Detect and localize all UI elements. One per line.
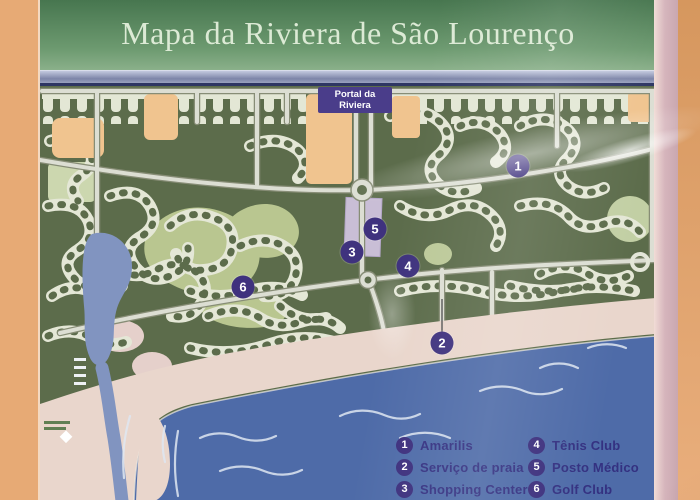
legend-label: Golf Club bbox=[552, 482, 612, 497]
map-marker-2: 2 bbox=[431, 332, 454, 355]
legend-label: Tênis Club bbox=[552, 438, 620, 453]
legend-marker-2: 2 bbox=[396, 459, 413, 476]
legend-label: Shopping Center bbox=[420, 482, 528, 497]
sign-rail-bar bbox=[40, 70, 656, 86]
marker-number: 6 bbox=[239, 280, 246, 295]
legend-item-servico-de-praia: 2 Serviço de praia bbox=[396, 456, 520, 478]
portal-label-line2: Riviera bbox=[318, 100, 392, 111]
legend-marker-1: 1 bbox=[396, 437, 413, 454]
legend-label: Serviço de praia bbox=[420, 460, 524, 475]
legend-label: Posto Médico bbox=[552, 460, 639, 475]
map-legend: 1 Amarilis 2 Serviço de praia 3 Shopping… bbox=[396, 434, 639, 500]
legend-marker-5: 5 bbox=[528, 459, 545, 476]
legend-item-tenis-club: 4 Tênis Club bbox=[528, 434, 639, 456]
legend-marker-3: 3 bbox=[396, 481, 413, 498]
map-marker-4: 4 bbox=[397, 255, 420, 278]
legend-marker-4: 4 bbox=[528, 437, 545, 454]
map-marker-3: 3 bbox=[341, 241, 364, 264]
legend-item-amarilis: 1 Amarilis bbox=[396, 434, 520, 456]
wall-background bbox=[676, 0, 700, 500]
marker-number: 1 bbox=[514, 159, 521, 174]
marker-number: 4 bbox=[404, 259, 411, 274]
map-marker-5: 5 bbox=[364, 218, 387, 241]
legend-label: Amarilis bbox=[420, 438, 473, 453]
marker-2-leader-line bbox=[441, 299, 443, 332]
legend-item-shopping-center: 3 Shopping Center bbox=[396, 478, 520, 500]
portal-da-riviera-sign: Portal da Riviera bbox=[318, 87, 392, 113]
legend-item-posto-medico: 5 Posto Médico bbox=[528, 456, 639, 478]
map-marker-1: 1 bbox=[507, 155, 530, 178]
map-marker-6: 6 bbox=[232, 276, 255, 299]
marker-number: 3 bbox=[348, 245, 355, 260]
marker-number: 2 bbox=[438, 336, 445, 351]
portal-label-line1: Portal da bbox=[318, 89, 392, 100]
legend-item-golf-club: 6 Golf Club bbox=[528, 478, 639, 500]
sign-title: Mapa da Riviera de São Lourenço bbox=[40, 0, 656, 66]
marker-number: 5 bbox=[371, 222, 378, 237]
sign-side-frame bbox=[654, 0, 678, 500]
sign-banner: Mapa da Riviera de São Lourenço bbox=[40, 0, 656, 70]
photo-of-map-sign: Mapa da Riviera de São Lourenço bbox=[0, 0, 700, 500]
legend-marker-6: 6 bbox=[528, 481, 545, 498]
